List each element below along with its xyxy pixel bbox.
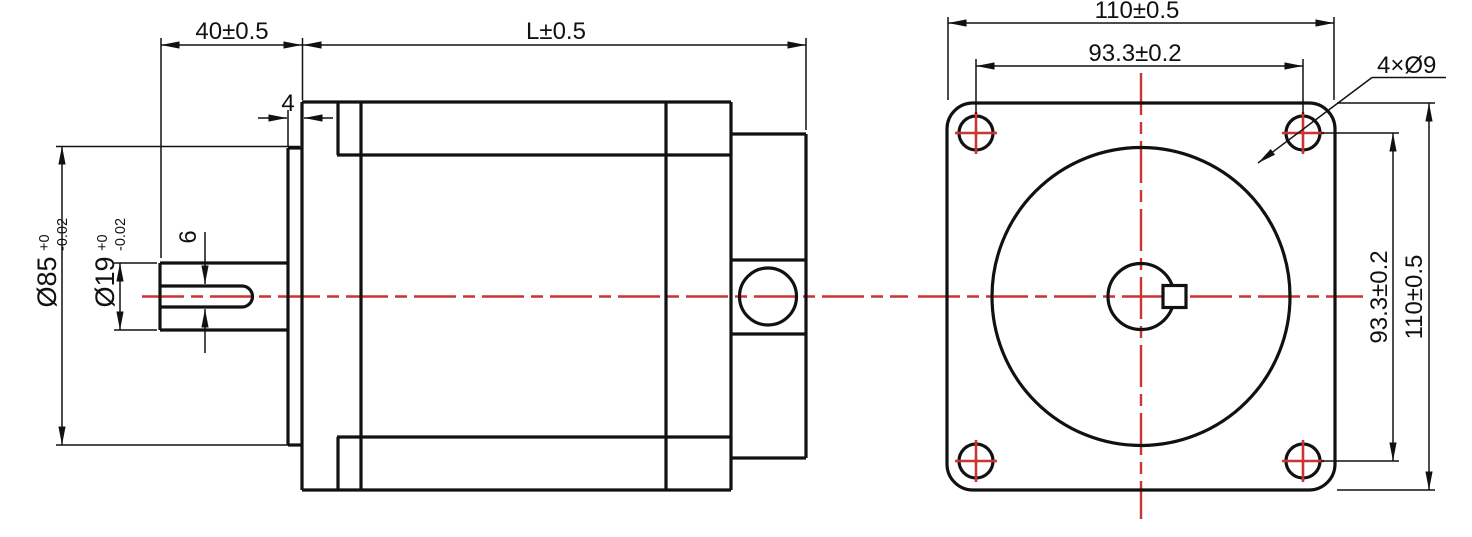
dim-boss-protrusion: 4 <box>258 90 333 146</box>
side-view: 40±0.5 L±0.5 4 6 <box>32 18 908 490</box>
motor-dimension-drawing: 40±0.5 L±0.5 4 6 <box>0 0 1472 537</box>
dim-keyway-width: 6 <box>175 230 205 353</box>
svg-text:93.3±0.2: 93.3±0.2 <box>1366 250 1393 343</box>
drawing-canvas: 40±0.5 L±0.5 4 6 <box>0 0 1472 537</box>
svg-text:Ø19: Ø19 <box>90 256 120 307</box>
svg-text:6: 6 <box>175 230 202 243</box>
svg-text:-0.02: -0.02 <box>113 218 129 251</box>
svg-text:93.3±0.2: 93.3±0.2 <box>1088 40 1181 67</box>
front-view: 110±0.5 93.3±0.2 4×Ø9 93.3±0.2 <box>918 0 1446 519</box>
svg-text:40±0.5: 40±0.5 <box>195 18 268 45</box>
bolt-hole-bottom-left <box>955 440 997 482</box>
dim-mounting-holes: 4×Ø9 <box>1258 52 1446 163</box>
svg-text:-0.02: -0.02 <box>55 218 71 251</box>
svg-text:4×Ø9: 4×Ø9 <box>1377 52 1436 79</box>
dim-shaft-length: 40±0.5 <box>161 18 303 258</box>
svg-text:110±0.5: 110±0.5 <box>1095 0 1180 24</box>
bolt-hole-bottom-right <box>1282 440 1324 482</box>
bolt-hole-top-left <box>955 112 997 154</box>
svg-text:L±0.5: L±0.5 <box>526 18 586 45</box>
svg-text:Ø85: Ø85 <box>32 256 62 307</box>
svg-text:110±0.5: 110±0.5 <box>1401 255 1428 340</box>
svg-text:+0: +0 <box>95 234 111 251</box>
keyway-profile <box>1163 286 1186 308</box>
svg-text:4: 4 <box>281 90 294 117</box>
svg-text:+0: +0 <box>37 234 53 251</box>
dim-shaft-diameter: Ø19 +0 -0.02 <box>90 218 157 330</box>
